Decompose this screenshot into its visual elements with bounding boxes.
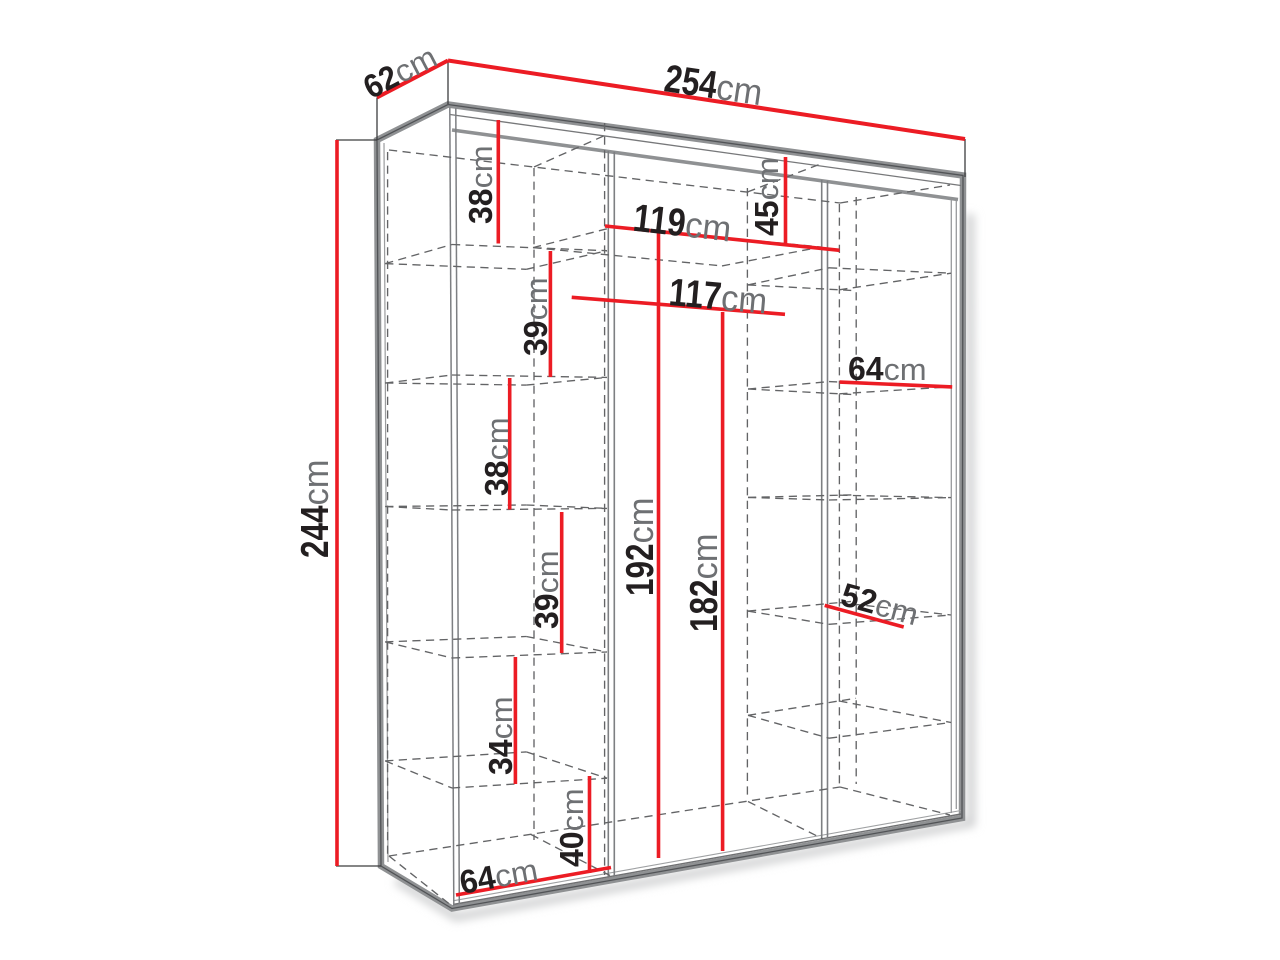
svg-text:64cm: 64cm [848,350,927,387]
svg-text:34cm: 34cm [482,696,519,775]
svg-text:39cm: 39cm [528,550,565,629]
svg-text:38cm: 38cm [478,417,515,496]
svg-text:38cm: 38cm [462,145,499,224]
svg-text:192cm: 192cm [619,498,662,597]
svg-text:39cm: 39cm [517,277,554,356]
svg-text:182cm: 182cm [683,534,726,633]
svg-text:244cm: 244cm [294,460,337,559]
svg-text:45cm: 45cm [748,157,785,236]
svg-text:117cm: 117cm [667,271,769,322]
svg-text:40cm: 40cm [553,788,590,867]
